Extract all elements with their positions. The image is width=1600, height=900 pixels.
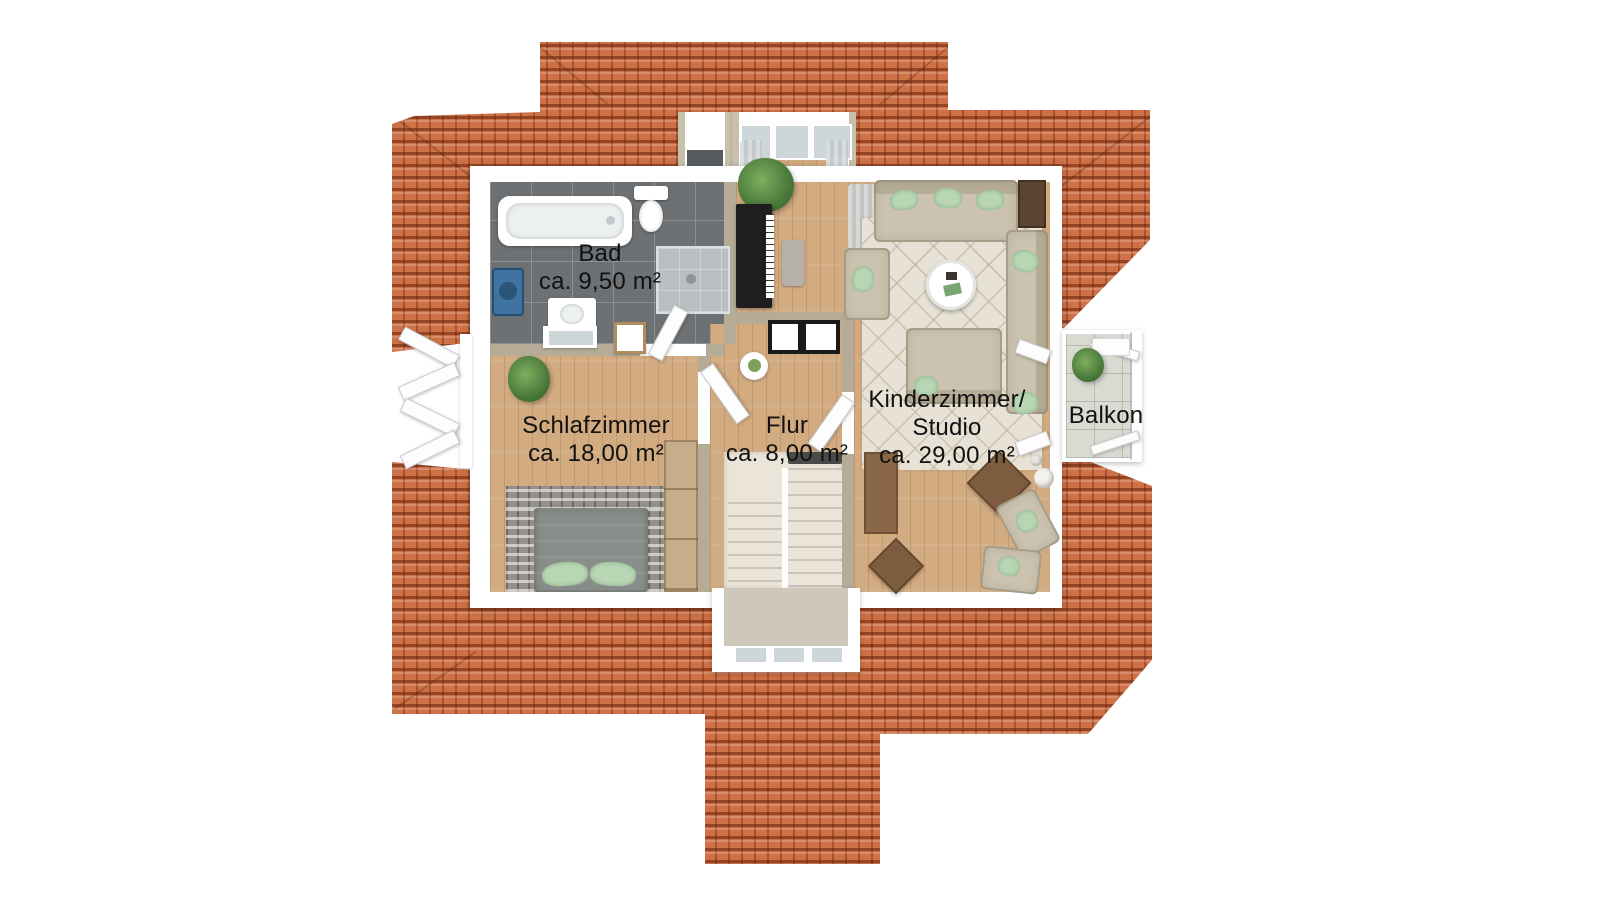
sofa-pillow [975,189,1004,211]
window-mullion [770,124,776,160]
stair-flight-left [728,502,782,592]
room-name: Balkon [1058,402,1154,430]
room-label-flur: Flur ca. 8,00 m² [707,412,867,468]
roof-hip-line [539,46,609,105]
sofa-pillow [933,187,962,209]
room-name: Schlafzimmer [496,412,696,440]
open-window-sash [400,430,461,470]
bed-pillow [589,561,636,587]
open-window-sash [398,362,461,401]
balcony [1062,330,1142,462]
stair-flight-right [788,468,842,592]
roof-hip-line [394,651,477,710]
stair-bay-window [734,646,768,664]
room-label-bad: Bad ca. 9,50 m² [520,240,680,296]
room-name: Flur [707,412,867,440]
roof-hip-line [879,46,949,105]
wall-flur-kz [842,454,854,592]
piano-bench [782,240,804,286]
picture-frame [614,322,646,354]
room-label-schlafzimmer: Schlafzimmer ca. 18,00 m² [496,412,696,468]
window-mullion [808,124,814,160]
vase [748,359,761,372]
bathtub [498,196,632,246]
stone-accent-top [506,486,676,510]
table-decor [946,272,957,280]
room-name: Studio [857,414,1037,442]
roof-hip-line [1057,114,1153,189]
toilet-bowl [639,200,663,232]
coffee-table [926,260,976,310]
side-cabinet [1018,180,1046,228]
stair-bay-window [810,646,844,664]
room-label-balkon: Balkon [1058,402,1154,430]
shower-drain [686,274,696,284]
wall-bath-bottom [706,344,724,356]
wall-flur-kz [842,324,854,392]
floor-plan-image: Bad ca. 9,50 m² Schlafzimmer ca. 18,00 m… [0,0,1600,900]
bedroom-plant [508,356,550,402]
room-label-kinderzimmer: Kinderzimmer/ Studio ca. 29,00 m² [857,386,1037,470]
piano-keys [766,214,774,298]
stairwell [724,452,842,592]
picture-frame [802,320,840,354]
roof-window-wall [543,326,597,348]
room-area: ca. 9,50 m² [520,268,680,296]
side-table [740,352,768,380]
stair-bay [712,588,860,672]
room-area: ca. 29,00 m² [857,442,1037,470]
roof-window-glass [548,330,594,346]
room-name: Kinderzimmer/ [857,386,1037,414]
toilet [634,186,668,200]
washer-door [499,282,517,300]
sink-basin [560,304,584,324]
floor-vase [1034,468,1054,488]
room-area: ca. 8,00 m² [707,440,867,468]
table-decor-book [943,282,962,296]
stair-bay-floor [724,588,848,646]
balcony-plant [1072,348,1104,382]
stair-bay-window [772,646,806,664]
room-area: ca. 18,00 m² [496,440,696,468]
window-jamb [460,334,472,468]
room-name: Bad [520,240,680,268]
picture-frame [768,320,802,354]
piano [736,204,772,308]
bathtub-drain [606,216,615,225]
